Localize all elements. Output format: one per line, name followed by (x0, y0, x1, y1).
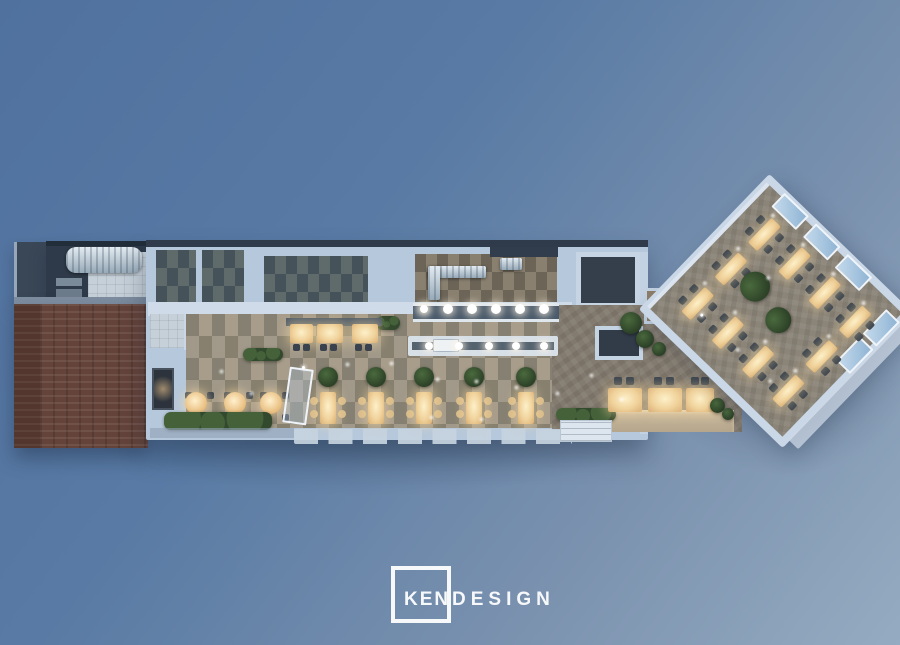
booth-planter-4 (464, 367, 484, 387)
street-booth-1 (320, 392, 336, 424)
bar-service-hatch (433, 339, 459, 352)
booth-table-b (317, 324, 343, 343)
kitchen-hood (66, 247, 142, 273)
sidewalk-left (150, 428, 294, 438)
booth-planter-2 (366, 367, 386, 387)
plant-cluster-bar-2 (636, 330, 654, 348)
dark-chairs (293, 344, 300, 351)
hall-table-4 (711, 316, 744, 349)
ceiling-spotlights-main (302, 366, 305, 369)
street-booth-4 (466, 392, 482, 424)
prep-counter-small (500, 258, 522, 270)
storage-room (576, 252, 640, 308)
terrace-table-2 (648, 388, 682, 412)
round-table-2 (224, 392, 246, 414)
render-canvas: KEN DESIGN (0, 0, 900, 645)
booth-planter-3 (414, 367, 434, 387)
hall-table-7 (808, 276, 841, 309)
backroom-3 (264, 256, 368, 302)
brick-parapet (14, 297, 148, 304)
hall-table-1 (681, 287, 714, 320)
main-roof-edge (146, 240, 648, 247)
terrace-dark-chairs (614, 377, 622, 385)
plant-cluster-bar-3 (652, 342, 666, 356)
hall-table-6 (742, 345, 775, 378)
brick-building-side-face (14, 304, 40, 448)
kitchen-roof-edge (46, 241, 148, 246)
terrace-table-1 (608, 388, 642, 412)
booth-table-a (290, 324, 313, 343)
terrace-walkway-lit (598, 410, 734, 432)
service-annex (14, 242, 46, 304)
logo-ken-text: KEN (404, 590, 450, 609)
street-booth-3 (416, 392, 432, 424)
hall-table-5 (778, 247, 811, 280)
kitchen-shelving-rack (56, 278, 82, 286)
hall-spotlights (700, 313, 704, 317)
prep-roof-band (490, 247, 558, 257)
hall-plant-2 (760, 302, 797, 339)
ken-design-logo: KEN DESIGN (384, 562, 614, 626)
logo-design-text: DESIGN (452, 590, 555, 609)
paver-row (294, 429, 572, 444)
backroom-2 (202, 250, 244, 310)
hall-plant-1 (734, 265, 776, 307)
street-booth-5 (518, 392, 534, 424)
bar-lights (420, 305, 428, 313)
plant-low-2 (722, 408, 734, 420)
bar-back-counter (413, 303, 559, 322)
round-table-3 (260, 392, 282, 414)
entry-foyer-floor (150, 314, 186, 348)
round-table-1 (185, 392, 207, 414)
booth-table-c (352, 324, 378, 343)
booth-planter-5 (516, 367, 536, 387)
street-booth-2 (368, 392, 384, 424)
wall-art-frame (152, 368, 174, 410)
entrance-ramp (560, 420, 612, 442)
prep-counter-leg (428, 266, 440, 300)
hall-table-8 (772, 374, 805, 407)
backroom-1 (156, 250, 196, 310)
booth-planter-1 (318, 367, 338, 387)
hedge-ledge (243, 348, 283, 361)
hall-table-9 (805, 340, 838, 373)
booth-warm-chairs (310, 397, 318, 405)
plant-cluster-bar-1 (620, 312, 642, 334)
hall-table-3 (748, 218, 781, 251)
